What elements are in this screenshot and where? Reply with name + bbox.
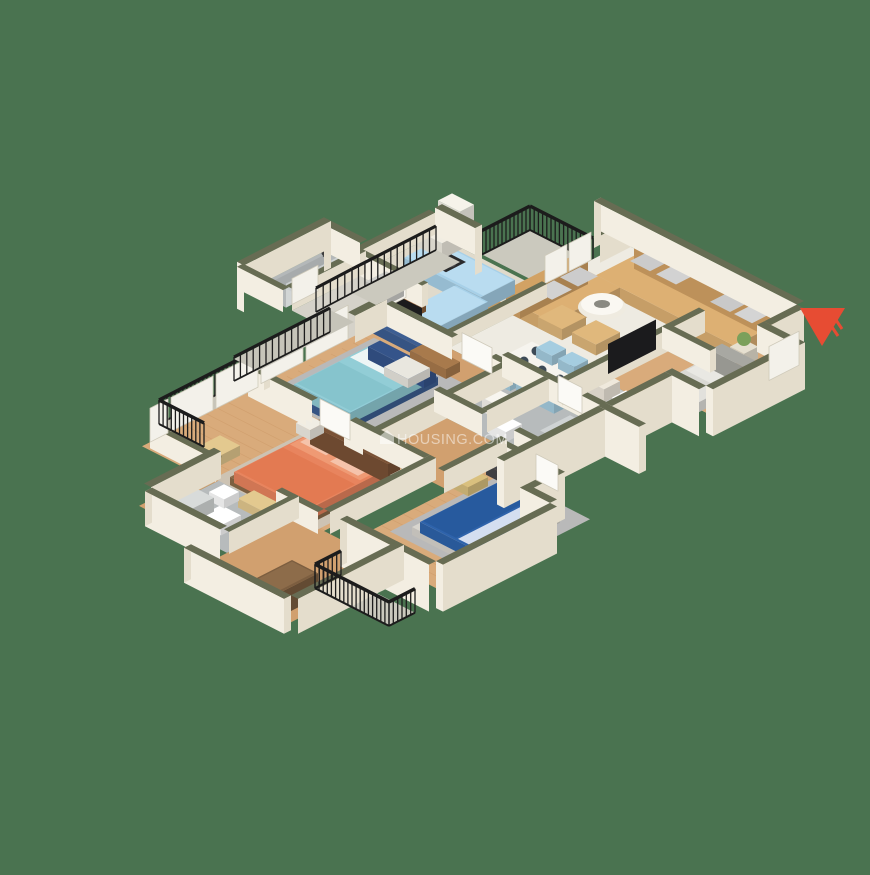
svg-text:HOUSING.COM: HOUSING.COM xyxy=(397,432,508,448)
